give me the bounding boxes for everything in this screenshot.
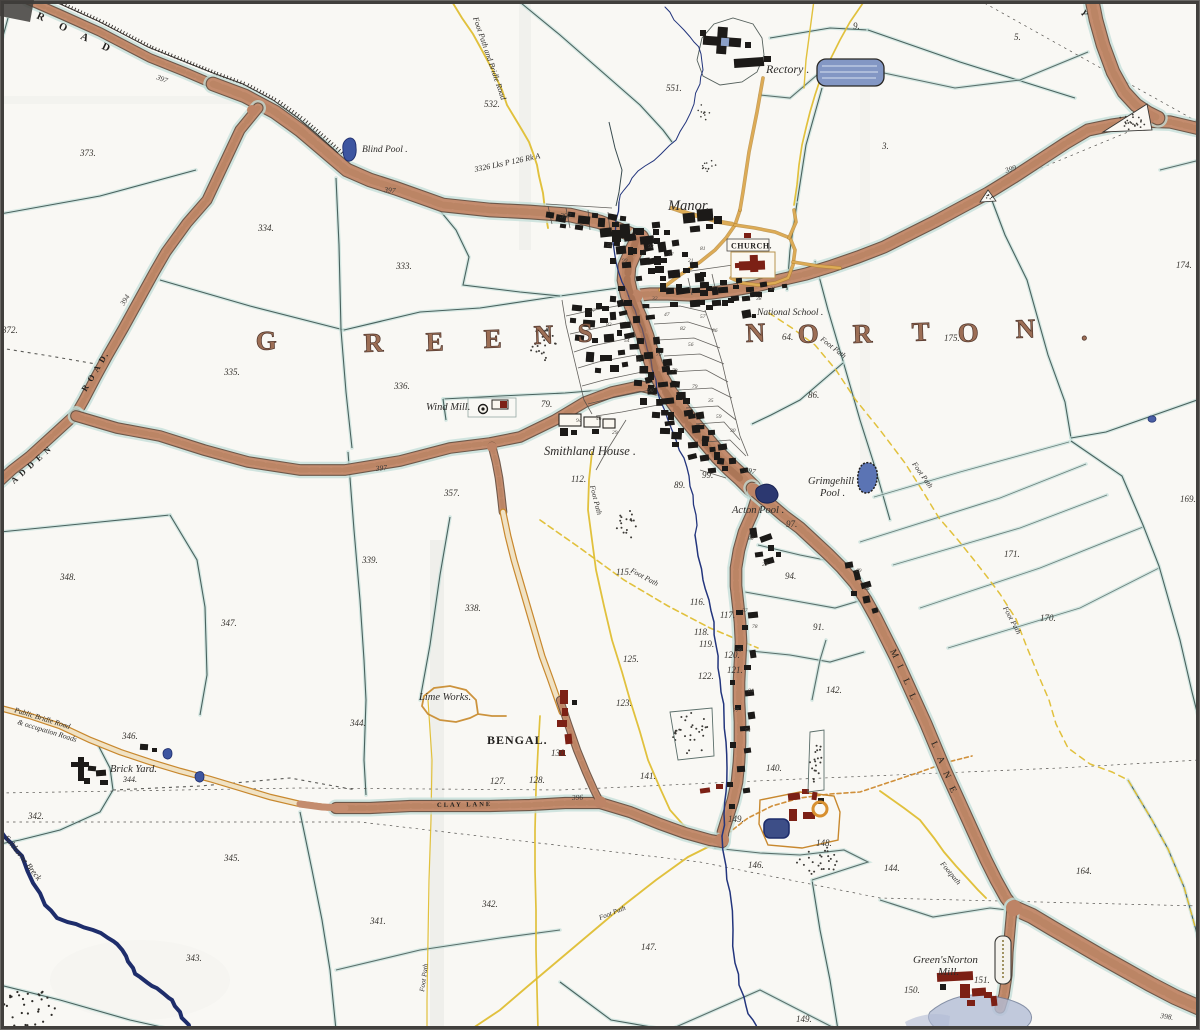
svg-text:9.: 9.	[853, 21, 860, 31]
svg-text:130.: 130.	[551, 748, 567, 758]
svg-text:Rectory .: Rectory .	[765, 62, 809, 76]
svg-text:Grimgehill: Grimgehill	[808, 476, 854, 487]
svg-text:57: 57	[742, 608, 748, 614]
svg-text:3.: 3.	[881, 141, 889, 151]
svg-text:345.: 345.	[223, 853, 240, 863]
svg-text:46: 46	[864, 585, 870, 592]
svg-text:147.: 147.	[641, 942, 657, 952]
svg-text:146.: 146.	[748, 860, 764, 870]
svg-text:Smithland House .: Smithland House .	[544, 444, 636, 458]
svg-text:148.: 148.	[816, 838, 832, 848]
svg-text:396: 396	[571, 793, 584, 802]
svg-text:397: 397	[383, 185, 396, 195]
svg-text:30: 30	[729, 428, 736, 434]
svg-text:Lime Works.: Lime Works.	[418, 692, 471, 703]
svg-text:174.: 174.	[1176, 260, 1192, 270]
svg-text:341.: 341.	[369, 916, 386, 926]
svg-text:342.: 342.	[27, 811, 44, 821]
svg-text:397: 397	[559, 211, 572, 220]
svg-text:37: 37	[667, 252, 674, 258]
svg-text:121.: 121.	[727, 665, 743, 675]
svg-text:119.: 119.	[699, 639, 714, 649]
svg-text:27: 27	[590, 308, 596, 314]
svg-text:79: 79	[656, 352, 662, 358]
svg-text:86: 86	[712, 328, 718, 334]
svg-text:99.: 99.	[702, 470, 713, 480]
svg-text:57: 57	[700, 314, 706, 320]
svg-text:Pool .: Pool .	[819, 488, 845, 499]
svg-text:84: 84	[748, 687, 754, 694]
svg-text:R: R	[852, 318, 873, 349]
svg-text:G: G	[255, 325, 277, 356]
svg-text:O: O	[957, 317, 979, 348]
svg-text:59: 59	[716, 414, 722, 420]
svg-text:128.: 128.	[529, 775, 545, 785]
svg-text:169.: 169.	[1180, 494, 1196, 504]
svg-text:164.: 164.	[1076, 866, 1092, 876]
svg-text:N: N	[745, 317, 766, 348]
svg-text:78: 78	[752, 624, 758, 630]
svg-text:Green'sNorton: Green'sNorton	[913, 954, 978, 966]
svg-text:127.: 127.	[490, 776, 506, 786]
svg-text:N: N	[1015, 313, 1036, 344]
svg-text:86.: 86.	[808, 390, 819, 400]
svg-text:77: 77	[733, 708, 739, 714]
svg-text:Manor.: Manor.	[667, 198, 710, 214]
svg-text:336.: 336.	[393, 381, 410, 391]
svg-text:E: E	[425, 326, 444, 357]
svg-text:S: S	[577, 317, 593, 348]
svg-text:125.: 125.	[623, 654, 639, 664]
svg-text:29: 29	[612, 430, 618, 436]
svg-text:National School .: National School .	[756, 308, 823, 318]
svg-text:117.: 117.	[720, 610, 735, 620]
svg-text:344.: 344.	[349, 718, 366, 728]
svg-text:112.: 112.	[571, 474, 586, 484]
svg-text:T: T	[911, 316, 930, 347]
svg-text:64.: 64.	[782, 332, 793, 342]
svg-text:344.: 344.	[122, 775, 137, 784]
svg-text:79: 79	[672, 368, 678, 374]
svg-text:Blind Pool .: Blind Pool .	[362, 145, 408, 155]
svg-text:150.: 150.	[904, 985, 920, 995]
svg-text:149.: 149.	[796, 1014, 812, 1024]
svg-text:45: 45	[636, 357, 642, 364]
svg-text:348.: 348.	[59, 572, 76, 582]
svg-text:335.: 335.	[223, 367, 240, 377]
svg-text:54: 54	[624, 337, 630, 344]
svg-text:343.: 343.	[185, 953, 202, 963]
svg-text:46: 46	[596, 415, 602, 422]
svg-text:21: 21	[688, 258, 694, 264]
svg-text:338.: 338.	[464, 603, 481, 613]
svg-text:116.: 116.	[690, 597, 705, 607]
svg-text:144.: 144.	[884, 863, 900, 873]
svg-text:N: N	[533, 319, 554, 350]
svg-text:O: O	[797, 318, 819, 349]
svg-text:342.: 342.	[481, 899, 498, 909]
svg-text:80: 80	[748, 536, 754, 542]
svg-text:94: 94	[576, 417, 582, 424]
svg-text:175.: 175.	[944, 333, 960, 343]
svg-text:142.: 142.	[826, 685, 842, 695]
svg-text:346.: 346.	[121, 731, 138, 741]
svg-text:140.: 140.	[766, 763, 782, 773]
svg-text:532.: 532.	[484, 99, 500, 109]
svg-text:5.: 5.	[1014, 32, 1021, 42]
svg-text:22: 22	[762, 562, 768, 568]
svg-text:CLAY LANE: CLAY LANE	[437, 801, 492, 809]
svg-text:56: 56	[688, 342, 694, 348]
svg-text:171.: 171.	[1004, 549, 1020, 559]
svg-text:94.: 94.	[785, 571, 796, 581]
svg-text:CHURCH.: CHURCH.	[731, 242, 772, 251]
svg-text:81: 81	[700, 246, 706, 252]
svg-text:E: E	[483, 323, 502, 354]
svg-text:99: 99	[622, 258, 628, 264]
svg-text:89.: 89.	[674, 480, 685, 490]
svg-text:32: 32	[651, 296, 658, 302]
svg-text:69: 69	[856, 568, 862, 574]
svg-text:333.: 333.	[395, 261, 412, 271]
svg-text:334.: 334.	[257, 223, 274, 233]
svg-text:31: 31	[769, 286, 776, 292]
svg-text:R: R	[363, 327, 384, 358]
svg-text:151.: 151.	[974, 975, 990, 985]
svg-text:BENGAL.: BENGAL.	[487, 733, 548, 747]
svg-text:397: 397	[374, 463, 387, 473]
svg-text:97.: 97.	[786, 519, 797, 529]
svg-text:373.: 373.	[79, 148, 96, 158]
svg-text:170.: 170.	[1040, 613, 1056, 623]
svg-text:82: 82	[606, 322, 612, 328]
svg-text:Brick Yard.: Brick Yard.	[110, 764, 157, 775]
svg-text:92: 92	[648, 244, 654, 250]
svg-text:347.: 347.	[220, 618, 237, 628]
svg-text:122.: 122.	[698, 671, 714, 681]
svg-text:47: 47	[664, 311, 670, 318]
svg-text:35: 35	[707, 398, 714, 404]
svg-text:118.: 118.	[694, 627, 709, 637]
svg-text:Acton Pool .: Acton Pool .	[731, 505, 784, 516]
svg-text:54: 54	[745, 727, 751, 734]
svg-text:79.: 79.	[541, 399, 552, 409]
svg-text:357.: 357.	[443, 488, 460, 498]
svg-text:Wind Mill.: Wind Mill.	[426, 402, 470, 413]
svg-text:29: 29	[736, 648, 742, 654]
svg-text:551.: 551.	[666, 83, 682, 93]
svg-text:58: 58	[607, 243, 613, 249]
svg-text:38: 38	[755, 296, 762, 302]
svg-text:79: 79	[692, 384, 698, 390]
svg-text:115.: 115.	[616, 567, 631, 577]
svg-text:90: 90	[648, 388, 654, 394]
svg-text:339.: 339.	[361, 555, 378, 565]
svg-text:91.: 91.	[813, 622, 824, 632]
svg-text:Mill.: Mill.	[937, 966, 959, 978]
svg-text:141.: 141.	[640, 771, 656, 781]
svg-text:149.: 149.	[728, 814, 744, 824]
svg-text:82: 82	[680, 326, 686, 332]
svg-text:123.: 123.	[616, 698, 632, 708]
svg-text:.: .	[1080, 316, 1088, 346]
